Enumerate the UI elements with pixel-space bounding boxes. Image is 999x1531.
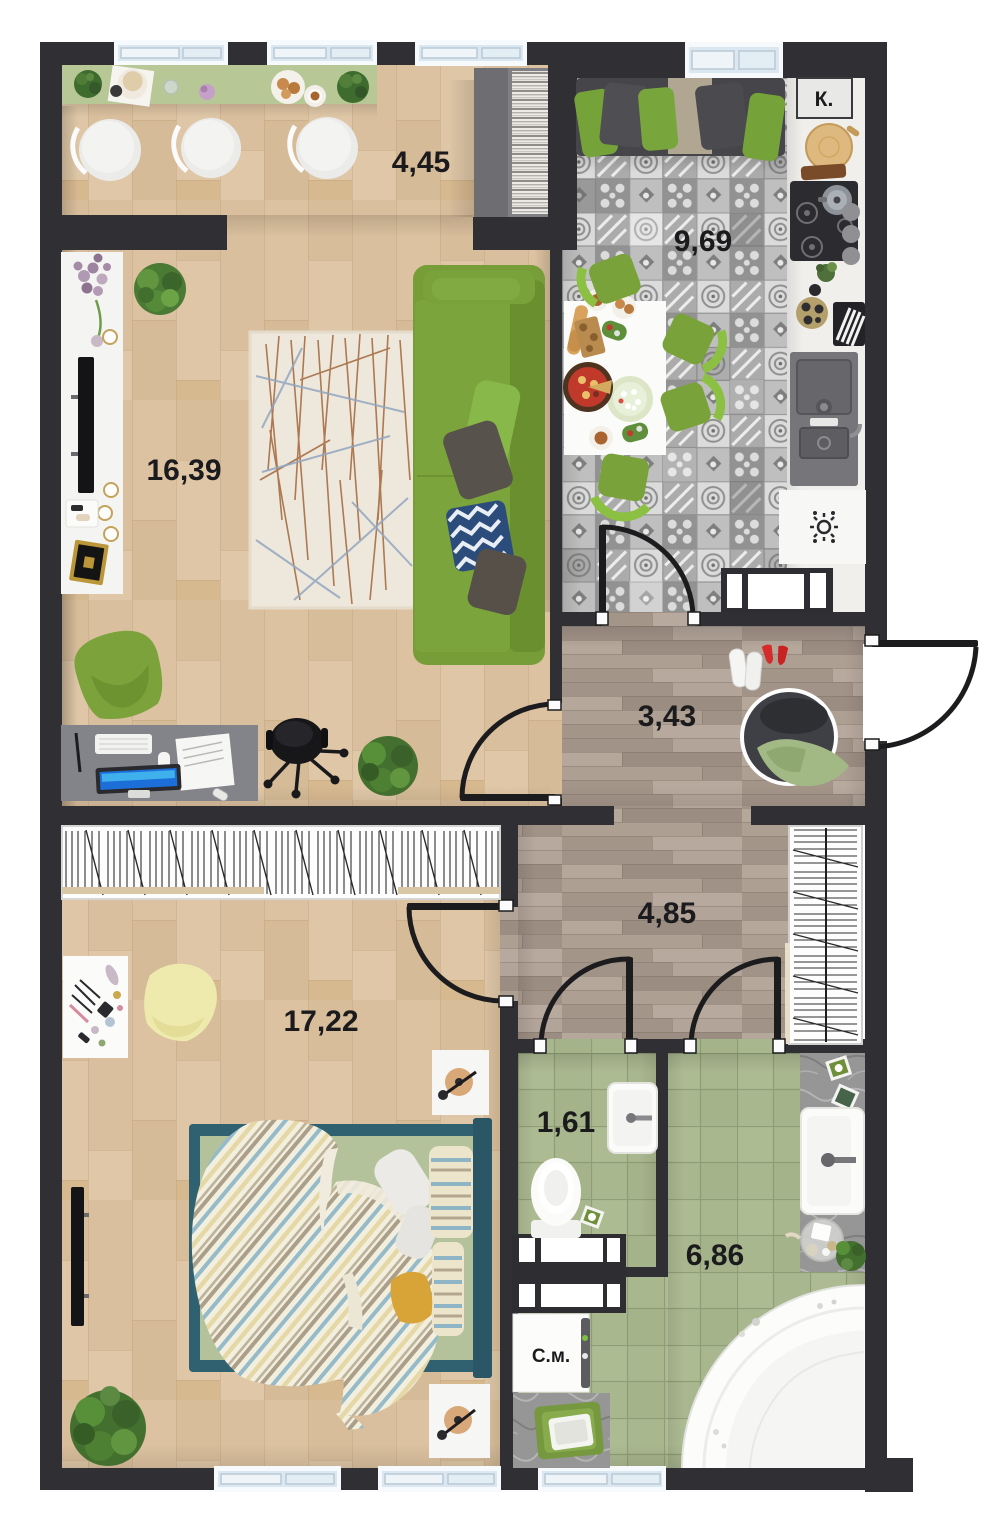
svg-text:3,43: 3,43 — [638, 700, 696, 733]
svg-text:1,61: 1,61 — [537, 1106, 595, 1139]
svg-text:С.м.: С.м. — [532, 1346, 570, 1367]
svg-text:16,39: 16,39 — [146, 454, 221, 487]
svg-text:4,85: 4,85 — [638, 897, 696, 930]
svg-text:17,22: 17,22 — [283, 1005, 358, 1038]
svg-text:4,45: 4,45 — [392, 146, 450, 179]
svg-text:К.: К. — [815, 88, 834, 111]
svg-text:9,69: 9,69 — [674, 225, 732, 258]
svg-text:6,86: 6,86 — [686, 1239, 744, 1272]
